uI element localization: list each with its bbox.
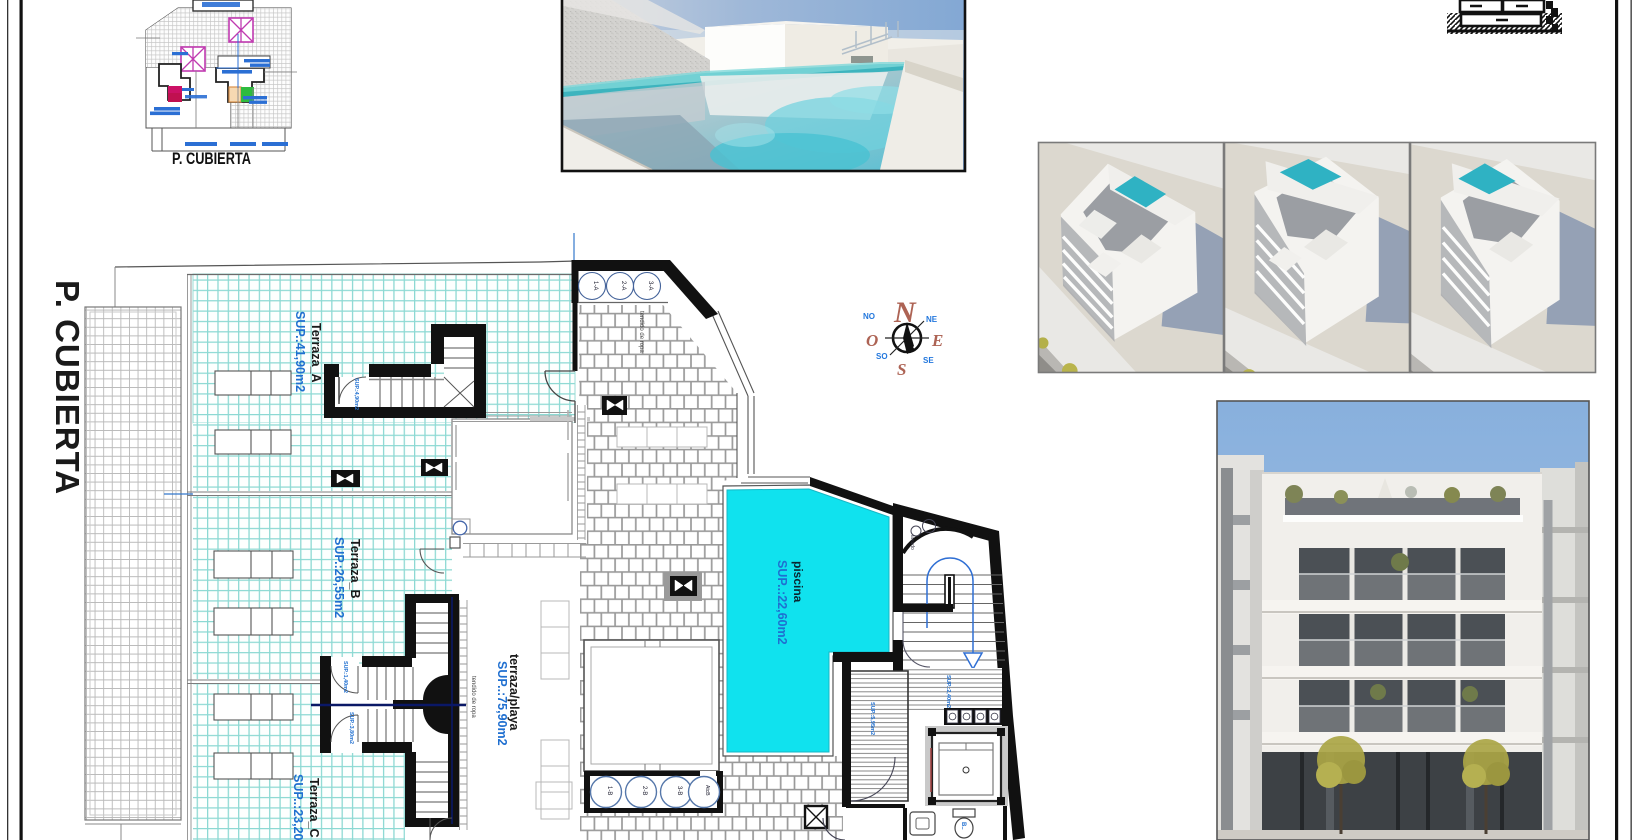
svg-text:SUP.:41,90m2: SUP.:41,90m2 — [293, 311, 307, 392]
svg-text:SUP..:22,60m2: SUP..:22,60m2 — [775, 560, 789, 645]
svg-text:SUP..:75,90m2: SUP..:75,90m2 — [495, 661, 509, 746]
svg-text:NE: NE — [926, 315, 938, 324]
svg-text:P. CUBIERTA: P. CUBIERTA — [172, 149, 251, 168]
svg-text:tendido de ropa: tendido de ropa — [638, 311, 644, 353]
svg-text:lavado: lavado — [909, 535, 915, 550]
svg-text:B..: B.. — [960, 822, 966, 830]
svg-text:3-B: 3-B — [676, 786, 682, 795]
svg-text:S: S — [897, 360, 906, 379]
svg-text:SUP.:2,40m2: SUP.:2,40m2 — [945, 675, 951, 708]
svg-text:Terraza_B: Terraza_B — [348, 539, 362, 599]
svg-text:2-A: 2-A — [620, 281, 626, 290]
svg-text:SO: SO — [876, 352, 888, 361]
svg-text:1-A: 1-A — [592, 281, 598, 290]
svg-text:AtcB: AtcB — [704, 785, 710, 796]
svg-text:piscina: piscina — [791, 561, 805, 603]
svg-text:SUP.:3,80m2: SUP.:3,80m2 — [348, 712, 354, 744]
svg-text:SUP.:5,95m2: SUP.:5,95m2 — [869, 702, 875, 735]
svg-text:P. CUBIERTA: P. CUBIERTA — [49, 280, 86, 495]
svg-text:SUP.:1,40m2: SUP.:1,40m2 — [342, 661, 348, 693]
svg-text:NO: NO — [863, 312, 875, 321]
svg-text:SUP.:26,55m2: SUP.:26,55m2 — [332, 537, 346, 618]
svg-text:Terraza_C: Terraza_C — [307, 778, 321, 838]
svg-text:3-A: 3-A — [647, 281, 653, 290]
svg-text:SUP.:4,90m2: SUP.:4,90m2 — [353, 378, 359, 410]
svg-text:2-B: 2-B — [641, 786, 647, 795]
svg-text:tendido de ropa: tendido de ropa — [470, 676, 476, 718]
svg-text:Terraza_A: Terraza_A — [309, 323, 323, 383]
svg-text:N: N — [893, 296, 917, 329]
svg-text:SUP..:23,20m: SUP..:23,20m — [291, 774, 305, 840]
svg-text:O: O — [866, 331, 878, 350]
svg-text:E: E — [931, 331, 943, 350]
svg-text:1-B: 1-B — [606, 786, 612, 795]
svg-text:SE: SE — [923, 356, 934, 365]
